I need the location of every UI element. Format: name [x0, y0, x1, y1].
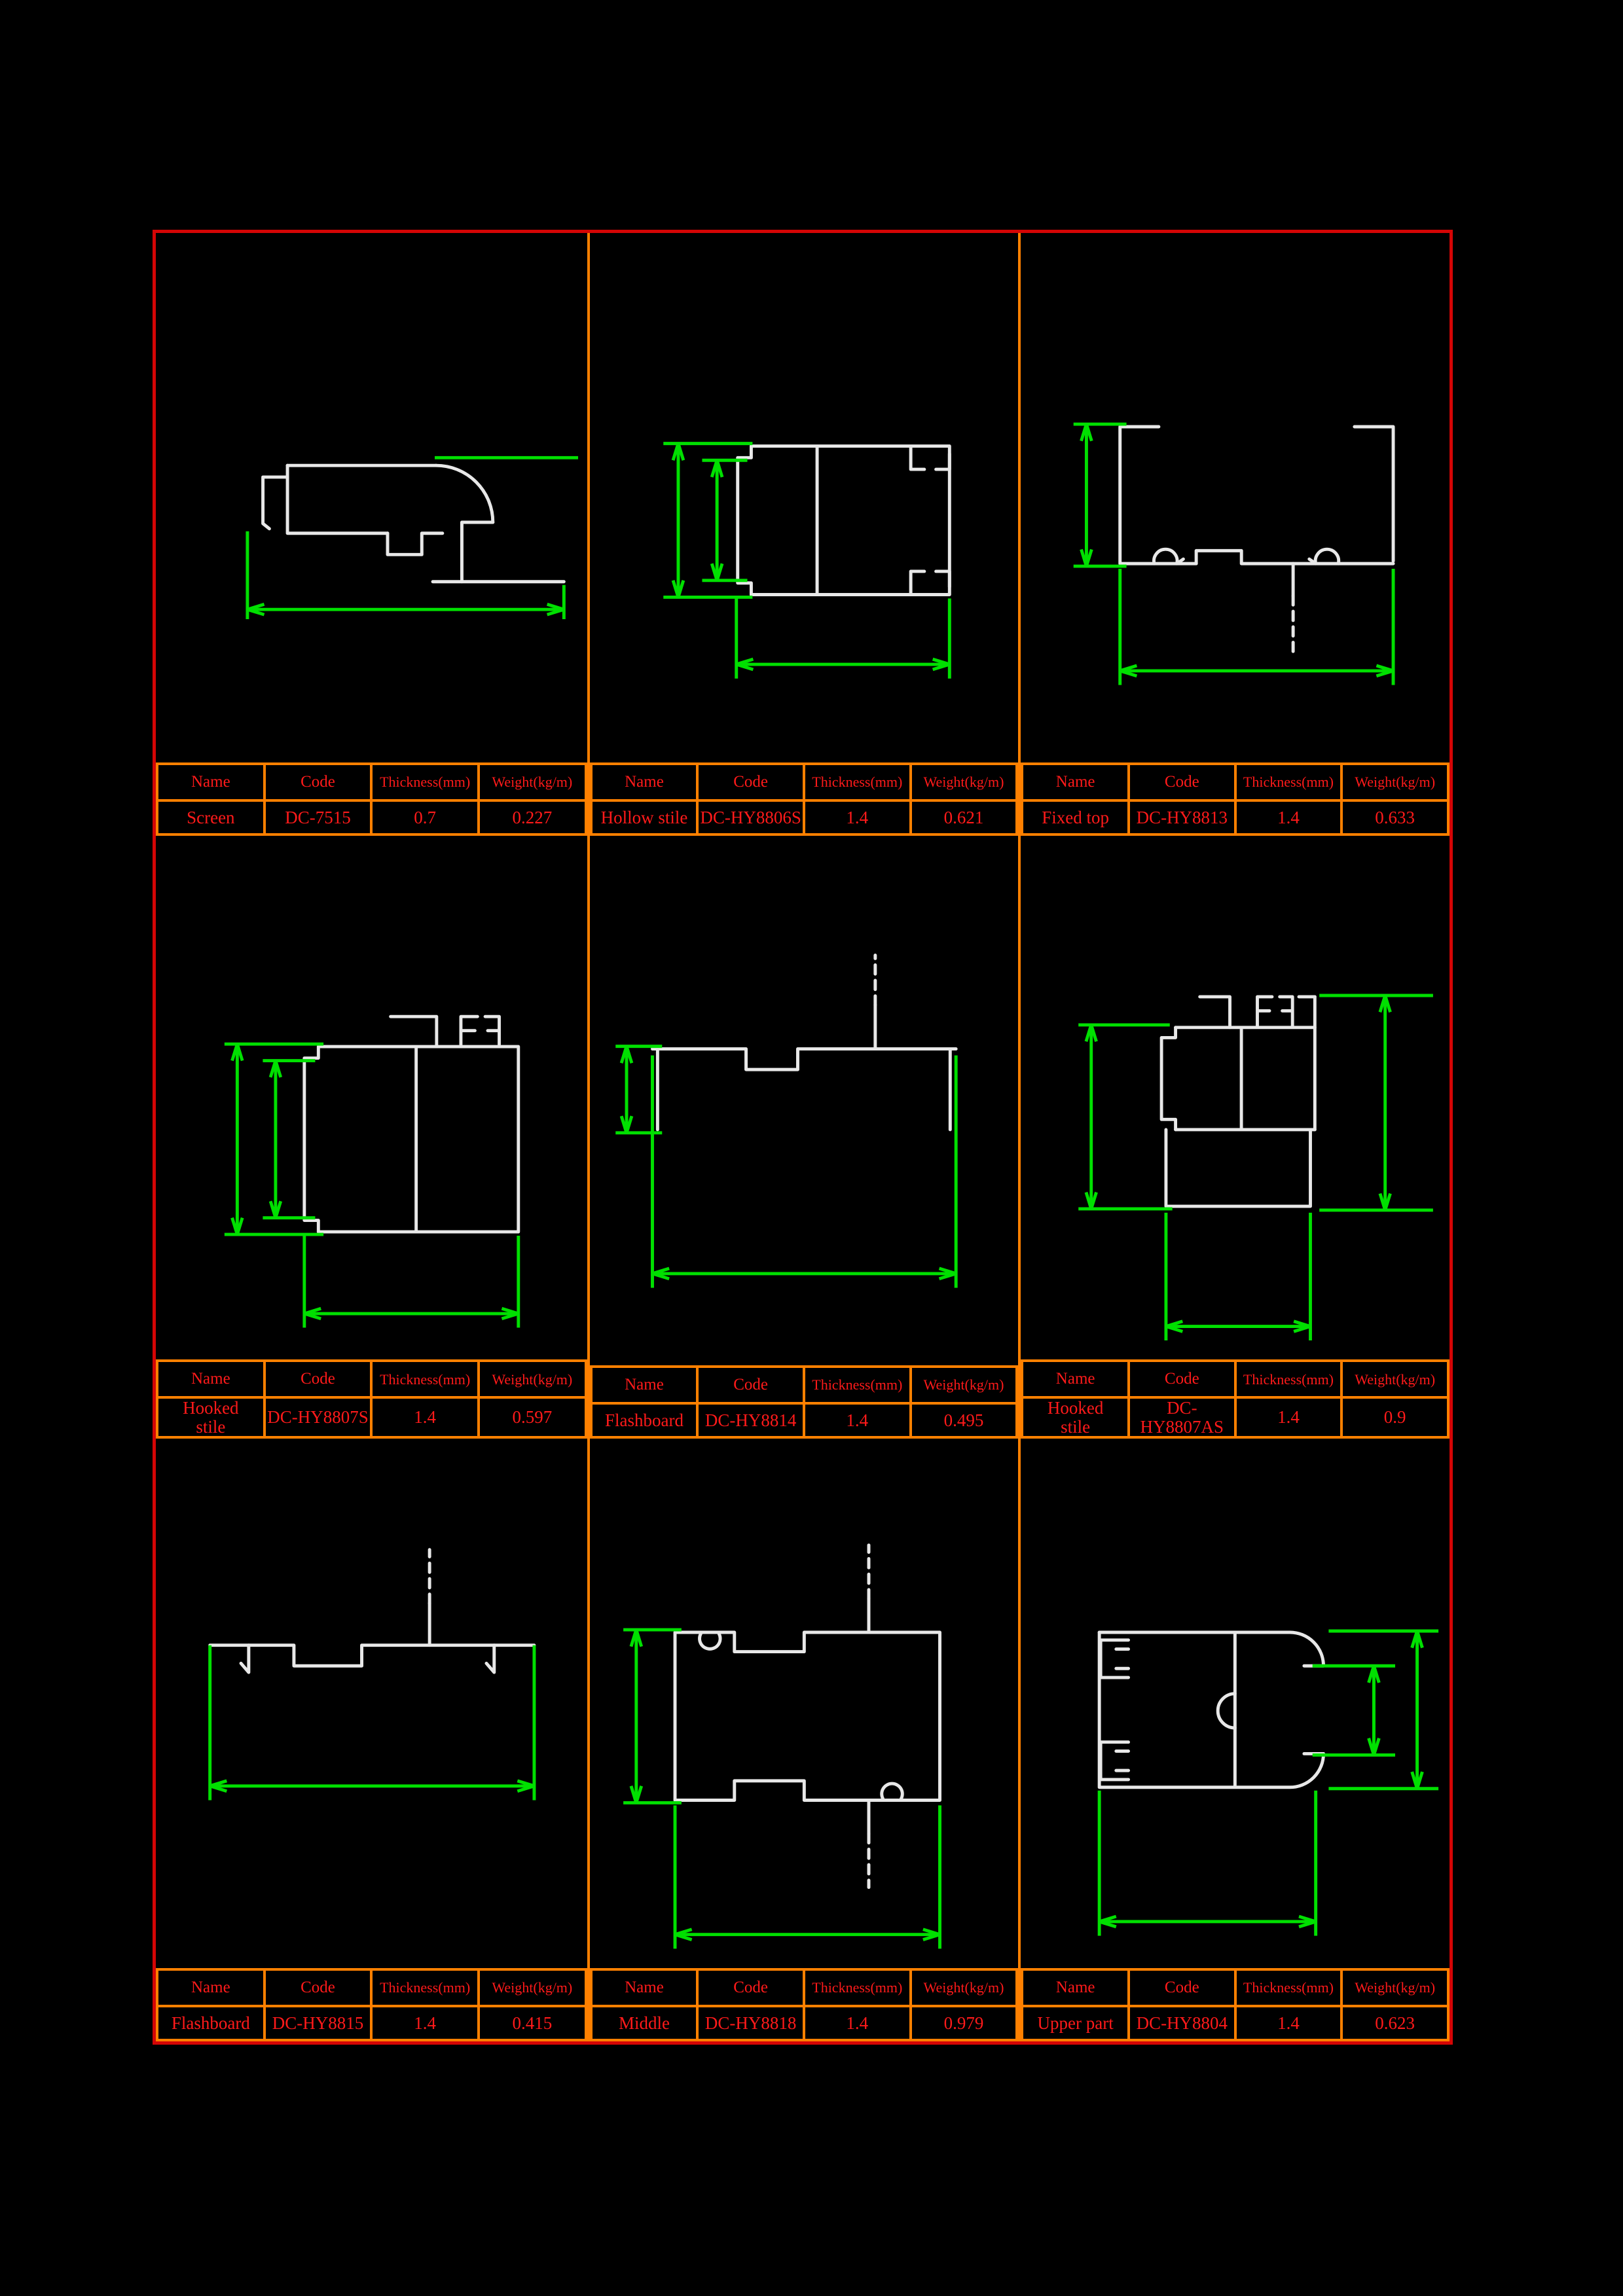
profile-drawing-flashboard-8814	[590, 836, 1019, 1365]
header-name: Name	[1022, 1969, 1129, 2006]
spec-table-flashboard-8815: Name Code Thickness(mm) Weight(kg/m) Fla…	[156, 1968, 587, 2041]
value-name: Upper part	[1022, 2006, 1129, 2040]
profile-drawing-middle	[590, 1439, 1019, 1968]
value-name: Hollow stile	[591, 800, 698, 834]
header-weight: Weight(kg/m)	[479, 764, 586, 800]
header-thickness: Thickness(mm)	[804, 1969, 911, 2006]
header-thickness: Thickness(mm)	[804, 764, 911, 800]
header-code: Code	[1129, 1969, 1235, 2006]
value-thickness: 1.4	[804, 1403, 911, 1437]
value-code: DC-7515	[264, 800, 372, 834]
spec-table-flashboard-8814: Name Code Thickness(mm) Weight(kg/m) Fla…	[590, 1365, 1019, 1439]
value-code: DC-HY8818	[697, 2006, 804, 2040]
value-thickness: 1.4	[804, 2006, 911, 2040]
table-value-row: Hooked stile DC-HY8807AS 1.4 0.9	[1022, 1397, 1448, 1437]
table-header-row: Name Code Thickness(mm) Weight(kg/m)	[591, 1969, 1017, 2006]
panel-upper-part: Name Code Thickness(mm) Weight(kg/m) Upp…	[1018, 1439, 1450, 2041]
spec-table-upper-part: Name Code Thickness(mm) Weight(kg/m) Upp…	[1021, 1968, 1450, 2041]
value-name: Middle	[591, 2006, 698, 2040]
value-weight: 0.623	[1341, 2006, 1448, 2040]
value-name: Screen	[157, 800, 264, 834]
header-thickness: Thickness(mm)	[1235, 1969, 1342, 2006]
value-weight: 0.415	[479, 2006, 586, 2040]
value-thickness: 1.4	[1235, 1397, 1342, 1437]
table-header-row: Name Code Thickness(mm) Weight(kg/m)	[157, 1969, 586, 2006]
header-weight: Weight(kg/m)	[911, 764, 1017, 800]
header-thickness: Thickness(mm)	[371, 1969, 479, 2006]
value-name: Hooked stile	[1022, 1397, 1129, 1437]
panel-flashboard-8815: Name Code Thickness(mm) Weight(kg/m) Fla…	[156, 1439, 587, 2041]
sheet-frame: Name Code Thickness(mm) Weight(kg/m) Scr…	[153, 230, 1453, 2045]
header-code: Code	[1129, 1361, 1235, 1397]
header-name: Name	[591, 1969, 698, 2006]
header-name: Name	[591, 1367, 698, 1403]
header-name: Name	[157, 764, 264, 800]
panel-fixed-top: Name Code Thickness(mm) Weight(kg/m) Fix…	[1018, 233, 1450, 836]
header-weight: Weight(kg/m)	[1341, 764, 1448, 800]
header-weight: Weight(kg/m)	[479, 1361, 586, 1397]
value-code: DC-HY8807S	[264, 1397, 372, 1437]
header-code: Code	[264, 1969, 372, 2006]
table-value-row: Hooked stile DC-HY8807S 1.4 0.597	[157, 1397, 586, 1437]
profile-drawing-fixed-top	[1021, 233, 1450, 762]
table-header-row: Name Code Thickness(mm) Weight(kg/m)	[1022, 1969, 1448, 2006]
profile-drawing-screen	[156, 233, 587, 762]
value-name: Fixed top	[1022, 800, 1129, 834]
table-value-row: Middle DC-HY8818 1.4 0.979	[591, 2006, 1017, 2040]
spec-table-hooked-stile-as: Name Code Thickness(mm) Weight(kg/m) Hoo…	[1021, 1359, 1450, 1439]
header-name: Name	[157, 1361, 264, 1397]
header-name: Name	[1022, 764, 1129, 800]
spec-table-screen: Name Code Thickness(mm) Weight(kg/m) Scr…	[156, 762, 587, 836]
spec-table-fixed-top: Name Code Thickness(mm) Weight(kg/m) Fix…	[1021, 762, 1450, 836]
value-name: Flashboard	[591, 1403, 698, 1437]
header-name: Name	[157, 1969, 264, 2006]
table-header-row: Name Code Thickness(mm) Weight(kg/m)	[157, 764, 586, 800]
value-thickness: 1.4	[1235, 2006, 1342, 2040]
panel-flashboard-8814: Name Code Thickness(mm) Weight(kg/m) Fla…	[587, 836, 1019, 1439]
header-thickness: Thickness(mm)	[804, 1367, 911, 1403]
table-header-row: Name Code Thickness(mm) Weight(kg/m)	[1022, 1361, 1448, 1397]
header-thickness: Thickness(mm)	[1235, 1361, 1342, 1397]
value-code: DC-HY8806S	[697, 800, 804, 834]
table-value-row: Flashboard DC-HY8815 1.4 0.415	[157, 2006, 586, 2040]
header-code: Code	[264, 764, 372, 800]
value-weight: 0.227	[479, 800, 586, 834]
profile-drawing-hooked-stile-s	[156, 836, 587, 1359]
profile-drawing-hooked-stile-as	[1021, 836, 1450, 1359]
table-header-row: Name Code Thickness(mm) Weight(kg/m)	[591, 764, 1017, 800]
header-weight: Weight(kg/m)	[479, 1969, 586, 2006]
panel-hooked-stile-as: Name Code Thickness(mm) Weight(kg/m) Hoo…	[1018, 836, 1450, 1439]
header-weight: Weight(kg/m)	[911, 1367, 1017, 1403]
table-value-row: Hollow stile DC-HY8806S 1.4 0.621	[591, 800, 1017, 834]
value-code: DC-HY8814	[697, 1403, 804, 1437]
value-weight: 0.9	[1341, 1397, 1448, 1437]
header-code: Code	[697, 1367, 804, 1403]
value-thickness: 1.4	[371, 2006, 479, 2040]
header-code: Code	[697, 1969, 804, 2006]
table-header-row: Name Code Thickness(mm) Weight(kg/m)	[591, 1367, 1017, 1403]
header-code: Code	[264, 1361, 372, 1397]
value-code: DC-HY8804	[1129, 2006, 1235, 2040]
header-thickness: Thickness(mm)	[1235, 764, 1342, 800]
header-weight: Weight(kg/m)	[1341, 1969, 1448, 2006]
spec-table-middle: Name Code Thickness(mm) Weight(kg/m) Mid…	[590, 1968, 1019, 2041]
value-name: Hooked stile	[157, 1397, 264, 1437]
header-thickness: Thickness(mm)	[371, 764, 479, 800]
table-value-row: Upper part DC-HY8804 1.4 0.623	[1022, 2006, 1448, 2040]
table-value-row: Flashboard DC-HY8814 1.4 0.495	[591, 1403, 1017, 1437]
profile-drawing-flashboard-8815	[156, 1439, 587, 1968]
value-weight: 0.621	[911, 800, 1017, 834]
value-thickness: 1.4	[371, 1397, 479, 1437]
header-weight: Weight(kg/m)	[1341, 1361, 1448, 1397]
profile-drawing-upper-part	[1021, 1439, 1450, 1968]
header-code: Code	[697, 764, 804, 800]
table-header-row: Name Code Thickness(mm) Weight(kg/m)	[1022, 764, 1448, 800]
header-code: Code	[1129, 764, 1235, 800]
value-thickness: 0.7	[371, 800, 479, 834]
cad-sheet: Name Code Thickness(mm) Weight(kg/m) Scr…	[0, 0, 1623, 2296]
panel-middle: Name Code Thickness(mm) Weight(kg/m) Mid…	[587, 1439, 1019, 2041]
spec-table-hooked-stile-s: Name Code Thickness(mm) Weight(kg/m) Hoo…	[156, 1359, 587, 1439]
panel-hooked-stile-s: Name Code Thickness(mm) Weight(kg/m) Hoo…	[156, 836, 587, 1439]
table-header-row: Name Code Thickness(mm) Weight(kg/m)	[157, 1361, 586, 1397]
panel-screen: Name Code Thickness(mm) Weight(kg/m) Scr…	[156, 233, 587, 836]
spec-table-hollow-stile: Name Code Thickness(mm) Weight(kg/m) Hol…	[590, 762, 1019, 836]
value-code: DC-HY8813	[1129, 800, 1235, 834]
value-code: DC-HY8807AS	[1129, 1397, 1235, 1437]
panel-hollow-stile: Name Code Thickness(mm) Weight(kg/m) Hol…	[587, 233, 1019, 836]
profile-drawing-hollow-stile	[590, 233, 1019, 762]
header-name: Name	[1022, 1361, 1129, 1397]
header-thickness: Thickness(mm)	[371, 1361, 479, 1397]
value-weight: 0.495	[911, 1403, 1017, 1437]
value-weight: 0.633	[1341, 800, 1448, 834]
value-thickness: 1.4	[804, 800, 911, 834]
header-weight: Weight(kg/m)	[911, 1969, 1017, 2006]
value-code: DC-HY8815	[264, 2006, 372, 2040]
value-thickness: 1.4	[1235, 800, 1342, 834]
value-weight: 0.597	[479, 1397, 586, 1437]
table-value-row: Screen DC-7515 0.7 0.227	[157, 800, 586, 834]
value-weight: 0.979	[911, 2006, 1017, 2040]
header-name: Name	[591, 764, 698, 800]
table-value-row: Fixed top DC-HY8813 1.4 0.633	[1022, 800, 1448, 834]
value-name: Flashboard	[157, 2006, 264, 2040]
